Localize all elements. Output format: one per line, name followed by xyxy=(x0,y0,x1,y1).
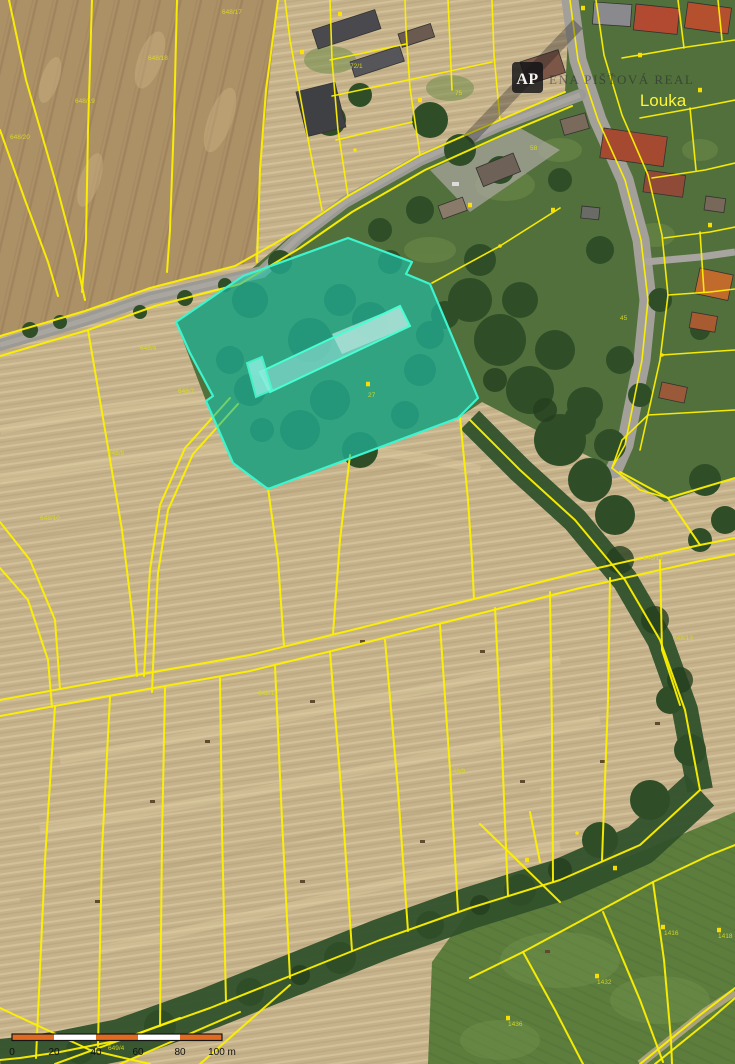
parcel-number-label: 1416 xyxy=(664,930,679,937)
scale-bar-segment xyxy=(96,1034,138,1041)
land-use-square-symbol xyxy=(613,866,617,871)
scale-bar-label: 40 xyxy=(90,1047,102,1058)
scale-bar-segment xyxy=(12,1034,54,1041)
building xyxy=(633,4,679,34)
watermark-text: ENA PIŠŤOVÁ REAL xyxy=(549,72,694,87)
scale-bar-segment xyxy=(138,1034,180,1041)
map-viewport[interactable]: 648/19648/20648/18648/17648/8648/4648/10… xyxy=(0,0,735,1064)
watermark-logo: AP xyxy=(516,71,538,88)
parcel-number-label: 648/18 xyxy=(148,55,168,62)
scale-bar-label: 80 xyxy=(174,1047,186,1058)
land-use-square-symbol xyxy=(418,98,422,103)
land-use-square-symbol xyxy=(595,974,599,979)
land-use-square-symbol xyxy=(661,925,665,930)
land-use-square-symbol xyxy=(717,928,721,933)
land-use-dot-symbol xyxy=(498,244,502,248)
parcel-number-label: 648/9 xyxy=(449,768,466,775)
parcel-number-label: 27 xyxy=(368,392,376,399)
parcel-number-label: 1432 xyxy=(597,979,612,986)
parcel-number-label: 648/20 xyxy=(10,134,30,141)
land-use-dot-symbol xyxy=(660,353,664,357)
parcel-number-label: 648/19 xyxy=(75,98,95,105)
land-use-dot-symbol xyxy=(353,148,357,152)
land-use-square-symbol xyxy=(506,1016,510,1021)
cadastral-map[interactable]: 648/19648/20648/18648/17648/8648/4648/10… xyxy=(0,0,735,1064)
building xyxy=(684,2,731,34)
parcel-number-label: 648/13 xyxy=(673,635,693,642)
land-use-square-symbol xyxy=(698,88,702,93)
scale-bar-segment xyxy=(180,1034,222,1041)
building xyxy=(704,196,726,213)
parcel-number-label: 648/17 xyxy=(222,9,242,16)
scale-bar-label: 100 m xyxy=(208,1047,236,1058)
scale-bar-label: 0 xyxy=(9,1047,15,1058)
scale-bar-label: 60 xyxy=(132,1047,144,1058)
land-use-square-symbol xyxy=(525,858,529,863)
land-use-square-symbol xyxy=(638,53,642,58)
parcel-number-label: 1436 xyxy=(508,1021,523,1028)
land-use-square-symbol xyxy=(338,12,342,16)
parcel-number-label: 648/7 xyxy=(178,388,195,395)
parked-car xyxy=(452,182,459,186)
parcel-number-label: 649/4 xyxy=(108,1045,125,1052)
parcel-number-label: 58 xyxy=(530,145,538,152)
parcel-number-label: 1418 xyxy=(718,933,733,940)
parcel-number-label: 648/4 xyxy=(140,345,157,352)
parcel-number-label: 648/8 xyxy=(108,450,125,457)
parcel-number-label: 45 xyxy=(620,315,628,322)
land-use-square-symbol xyxy=(708,223,712,228)
land-use-square-symbol xyxy=(581,6,585,11)
parcel-number-label: 648/11 xyxy=(258,690,278,697)
parcel-number-label: 75 xyxy=(455,90,463,97)
parcel-number-label: 648/10 xyxy=(40,515,60,522)
parcel-number-label: 72/1 xyxy=(350,63,363,70)
parcel-number-label: 648/12 xyxy=(643,555,663,562)
aerial-imagery xyxy=(0,0,735,1064)
building xyxy=(581,206,600,220)
scale-bar-segment xyxy=(54,1034,96,1041)
place-label: Louka xyxy=(640,91,687,110)
scale-bar-label: 20 xyxy=(48,1047,60,1058)
land-use-square-symbol xyxy=(468,203,472,208)
land-use-dot-symbol xyxy=(575,831,579,835)
land-use-square-symbol xyxy=(366,382,370,387)
land-use-square-symbol xyxy=(551,208,555,213)
land-use-square-symbol xyxy=(300,50,304,55)
